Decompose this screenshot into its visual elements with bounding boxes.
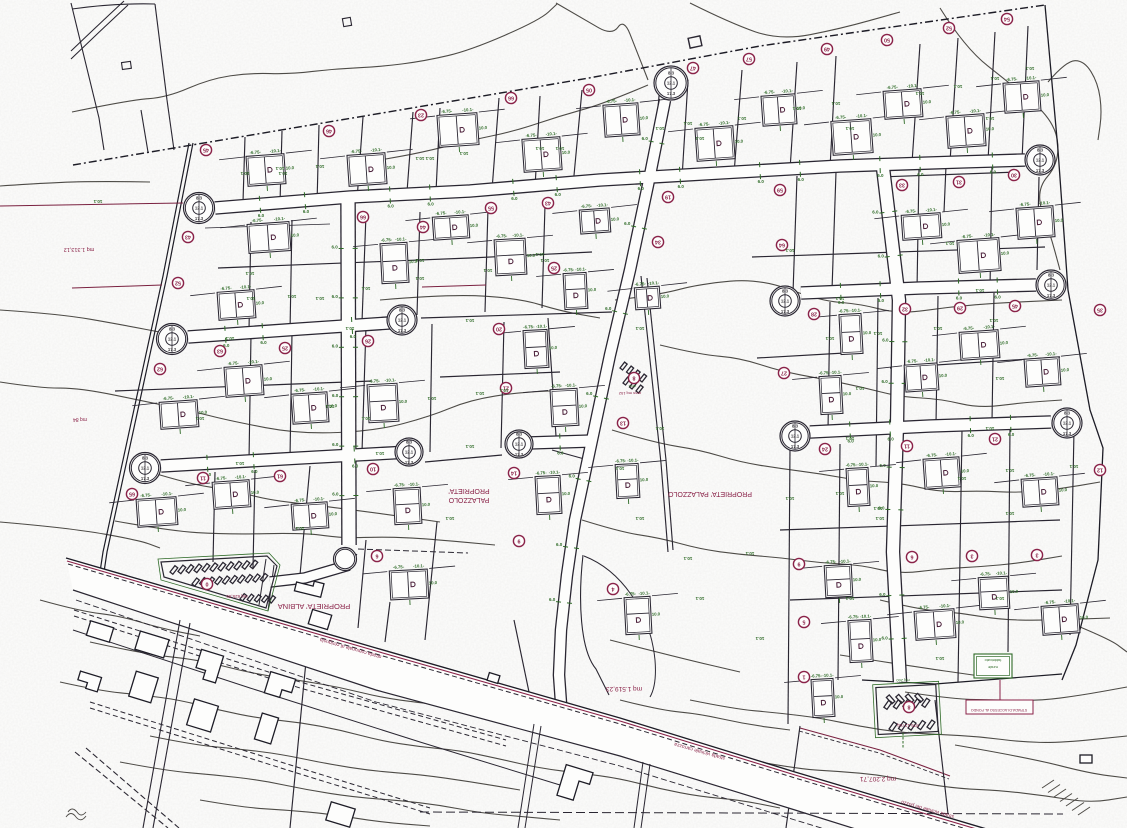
svg-text:-6.75-: -6.75- [926, 452, 938, 458]
svg-text:12.1: 12.1 [1047, 283, 1056, 288]
svg-text:PROPRIETA' PALAZZOLO: PROPRIETA' PALAZZOLO [667, 490, 751, 497]
svg-text:-6.75-: -6.75- [1027, 352, 1039, 358]
svg-text:6: 6 [376, 552, 379, 558]
svg-text:10.0: 10.0 [1055, 218, 1064, 224]
svg-text:6.0: 6.0 [427, 201, 434, 206]
svg-text:17.3: 17.3 [781, 309, 790, 314]
svg-text:6.0: 6.0 [332, 343, 339, 348]
svg-text:6.0: 6.0 [555, 192, 562, 197]
svg-text:10.1: 10.1 [915, 91, 924, 96]
svg-text:1: 1 [803, 673, 806, 679]
svg-text:10.1: 10.1 [427, 396, 436, 401]
svg-text:10.1: 10.1 [415, 258, 424, 263]
svg-text:10.1: 10.1 [745, 551, 754, 556]
svg-text:10.1: 10.1 [737, 116, 746, 121]
svg-text:63: 63 [217, 347, 223, 353]
svg-text:10.0: 10.0 [1010, 589, 1019, 594]
svg-text:8.3: 8.3 [782, 289, 789, 294]
svg-text:6.0: 6.0 [332, 442, 339, 447]
svg-text:10.0: 10.0 [562, 491, 571, 496]
svg-text:6.0: 6.0 [956, 295, 963, 300]
svg-text:43: 43 [185, 233, 191, 239]
svg-text:-6.75-: -6.75- [763, 89, 775, 95]
svg-text:-6.75-: -6.75- [825, 559, 837, 565]
svg-text:-10.1-: -10.1- [856, 113, 868, 119]
svg-text:10.1: 10.1 [635, 516, 644, 521]
svg-text:-10.1-: -10.1- [575, 266, 587, 272]
svg-text:10.1: 10.1 [975, 288, 984, 293]
svg-text:10.0: 10.0 [399, 399, 408, 404]
svg-text:45: 45 [203, 146, 209, 152]
svg-text:-6.75-: -6.75- [551, 383, 563, 389]
svg-text:10.1: 10.1 [845, 126, 854, 131]
svg-text:6.0: 6.0 [387, 203, 394, 208]
svg-text:45: 45 [1012, 302, 1018, 308]
svg-text:rurale: rurale [988, 665, 998, 669]
svg-text:10.0: 10.0 [387, 164, 396, 170]
svg-text:6.0: 6.0 [624, 221, 631, 226]
svg-text:6.0: 6.0 [303, 209, 310, 214]
svg-text:10.0: 10.0 [256, 300, 265, 306]
svg-text:29: 29 [957, 304, 963, 310]
svg-text:10.0: 10.0 [588, 287, 597, 292]
svg-text:-10.1-: -10.1- [1043, 471, 1055, 477]
svg-text:-6.75-: -6.75- [811, 673, 823, 679]
svg-text:10.1: 10.1 [425, 156, 434, 161]
svg-text:-6.75-: -6.75- [835, 114, 847, 120]
svg-text:-10.1-: -10.1- [830, 369, 842, 375]
svg-text:875,12 mq: 875,12 mq [897, 723, 919, 728]
svg-text:-6.75-: -6.75- [1044, 599, 1056, 605]
svg-text:17.3: 17.3 [405, 460, 414, 465]
svg-text:-6.75-: -6.75- [350, 148, 362, 154]
svg-text:-10.1-: -10.1- [270, 148, 282, 154]
svg-text:19: 19 [665, 193, 671, 199]
svg-text:54: 54 [1004, 15, 1010, 21]
svg-text:4: 4 [612, 585, 615, 591]
svg-text:10.0: 10.0 [470, 223, 479, 229]
svg-text:10.1: 10.1 [935, 656, 944, 661]
svg-text:-10.1-: -10.1- [1045, 351, 1057, 357]
svg-text:17.3: 17.3 [195, 216, 204, 221]
svg-text:6.0: 6.0 [968, 433, 975, 438]
svg-text:6.0: 6.0 [882, 337, 889, 342]
svg-text:21: 21 [992, 435, 998, 441]
svg-text:-6.75-: -6.75- [251, 217, 263, 223]
svg-text:3: 3 [971, 552, 974, 558]
svg-text:10.0: 10.0 [939, 373, 948, 379]
svg-text:10.1: 10.1 [540, 258, 549, 263]
svg-text:-10.1-: -10.1- [408, 481, 420, 487]
svg-text:10.0: 10.0 [1000, 340, 1009, 346]
svg-text:-10.1-: -10.1- [512, 232, 524, 238]
svg-text:6.0: 6.0 [882, 635, 889, 640]
svg-text:6.0: 6.0 [872, 210, 879, 215]
svg-text:6.0: 6.0 [549, 597, 556, 602]
svg-text:28: 28 [811, 310, 817, 316]
svg-text:10.0: 10.0 [329, 511, 338, 517]
svg-text:-10.1-: -10.1- [1039, 200, 1051, 206]
svg-text:10.0: 10.0 [1041, 92, 1050, 98]
svg-text:10.1: 10.1 [1025, 66, 1034, 71]
svg-text:26: 26 [365, 337, 371, 343]
svg-text:10.1: 10.1 [755, 636, 764, 641]
svg-text:10.1: 10.1 [275, 166, 284, 171]
svg-text:6.0: 6.0 [350, 334, 357, 339]
svg-text:-10.1-: -10.1- [638, 590, 650, 596]
svg-text:64: 64 [779, 241, 785, 247]
svg-text:-6.75-: -6.75- [394, 482, 406, 488]
svg-text:6.0: 6.0 [990, 169, 997, 174]
svg-text:12.1: 12.1 [515, 442, 524, 447]
svg-text:10.1: 10.1 [499, 388, 508, 393]
svg-text:10.0: 10.0 [1001, 250, 1010, 256]
svg-text:-6.75-: -6.75- [634, 281, 646, 287]
svg-text:mq 1.519,23: mq 1.519,23 [606, 685, 643, 692]
svg-text:10.0: 10.0 [264, 376, 273, 382]
svg-text:8.3: 8.3 [399, 308, 406, 313]
svg-text:-10.1-: -10.1- [983, 324, 995, 330]
svg-text:6: 6 [911, 553, 914, 559]
svg-text:-10.1-: -10.1- [924, 357, 936, 363]
svg-text:6.0: 6.0 [638, 186, 645, 191]
svg-text:10.1: 10.1 [873, 506, 882, 511]
svg-text:10.0: 10.0 [1061, 367, 1070, 373]
svg-text:12.1: 12.1 [141, 466, 150, 471]
svg-text:0: 0 [206, 580, 209, 586]
svg-text:47: 47 [690, 64, 696, 70]
svg-text:17.3: 17.3 [1047, 293, 1056, 298]
svg-text:10.0: 10.0 [611, 216, 620, 222]
svg-text:6.0: 6.0 [586, 391, 593, 396]
svg-text:10.1: 10.1 [615, 466, 624, 471]
svg-text:50: 50 [884, 36, 890, 42]
svg-text:-10.1-: -10.1- [781, 88, 793, 94]
svg-text:-10.1-: -10.1- [996, 570, 1008, 576]
svg-text:17.3: 17.3 [141, 476, 150, 481]
svg-text:-6.75-: -6.75- [441, 108, 453, 114]
svg-text:-10.1-: -10.1- [718, 120, 730, 126]
svg-text:-10.1-: -10.1- [1025, 75, 1037, 81]
svg-text:10.1: 10.1 [287, 294, 296, 299]
svg-text:fabbricato: fabbricato [985, 658, 1002, 662]
svg-text:mq 2.207,71: mq 2.207,71 [860, 775, 897, 782]
svg-text:-10.1-: -10.1- [549, 469, 561, 475]
svg-text:27: 27 [781, 369, 787, 375]
svg-text:10.0: 10.0 [640, 115, 649, 121]
svg-text:10.0: 10.0 [479, 125, 488, 131]
svg-text:-6.75-: -6.75- [381, 237, 393, 243]
svg-text:-6.75-: -6.75- [949, 109, 961, 115]
svg-text:10.1: 10.1 [361, 286, 370, 291]
svg-text:-6.75-: -6.75- [163, 395, 175, 401]
svg-text:46: 46 [326, 127, 332, 133]
svg-text:20: 20 [496, 325, 502, 331]
svg-text:-6.75-: -6.75- [393, 564, 405, 570]
svg-text:12.1: 12.1 [168, 337, 177, 342]
svg-text:6.0: 6.0 [642, 136, 649, 141]
svg-text:8.3: 8.3 [1048, 273, 1055, 278]
svg-text:5: 5 [803, 618, 806, 624]
svg-text:52: 52 [175, 279, 181, 285]
svg-text:17.3: 17.3 [791, 444, 800, 449]
svg-text:10.1: 10.1 [985, 426, 994, 431]
svg-text:10.0: 10.0 [835, 694, 844, 699]
svg-text:-10.1-: -10.1- [648, 280, 660, 286]
svg-text:10.0: 10.0 [986, 126, 995, 132]
svg-text:-10.1-: -10.1- [313, 386, 325, 392]
svg-text:-6.75-: -6.75- [227, 360, 239, 366]
svg-text:10.0: 10.0 [843, 391, 852, 396]
svg-text:12.1: 12.1 [667, 81, 676, 86]
svg-text:10.1: 10.1 [325, 404, 334, 409]
svg-text:-6.75-: -6.75- [1006, 76, 1018, 82]
svg-text:-6.75-: -6.75- [249, 149, 261, 155]
svg-text:10.1: 10.1 [831, 101, 840, 106]
svg-text:-6.75-: -6.75- [294, 387, 306, 393]
svg-text:6.0: 6.0 [878, 254, 885, 259]
svg-text:6.0: 6.0 [678, 184, 685, 189]
svg-text:-6.75-: -6.75- [1024, 472, 1036, 478]
svg-text:17.3: 17.3 [398, 328, 407, 333]
svg-text:-10.1-: -10.1- [839, 558, 851, 564]
svg-text:mq 1.313,12: mq 1.313,12 [64, 246, 95, 252]
svg-text:-10.1-: -10.1- [235, 474, 247, 480]
svg-text:-6.75-: -6.75- [220, 285, 232, 291]
svg-text:8.3: 8.3 [196, 196, 203, 201]
svg-text:6.0: 6.0 [798, 177, 805, 182]
svg-text:12.1: 12.1 [781, 299, 790, 304]
svg-text:-10.1-: -10.1- [313, 496, 325, 502]
svg-text:10.1: 10.1 [845, 596, 854, 601]
svg-text:-6.75-: -6.75- [819, 370, 831, 376]
svg-text:10.0: 10.0 [923, 99, 932, 105]
svg-text:9: 9 [518, 537, 521, 543]
svg-text:10.1: 10.1 [990, 76, 999, 81]
svg-text:05: 05 [586, 86, 592, 92]
svg-text:-10.1-: -10.1- [161, 491, 173, 497]
svg-text:mq 625,86: mq 625,86 [226, 594, 248, 599]
svg-text:10.1: 10.1 [1005, 511, 1014, 516]
svg-text:62: 62 [157, 365, 163, 371]
svg-text:10.1: 10.1 [235, 461, 244, 466]
svg-text:STRADA DI ACCESSO AL FONDO: STRADA DI ACCESSO AL FONDO [971, 708, 1028, 712]
svg-text:10.1: 10.1 [246, 296, 255, 301]
svg-text:10.1: 10.1 [345, 326, 354, 331]
svg-text:10.1: 10.1 [535, 146, 544, 151]
svg-text:10.1: 10.1 [695, 136, 704, 141]
svg-text:10.0: 10.0 [251, 490, 260, 496]
svg-text:10.0: 10.0 [873, 637, 882, 642]
svg-text:-6.75-: -6.75- [980, 571, 992, 577]
svg-text:12.1: 12.1 [1063, 421, 1072, 426]
svg-text:10.1: 10.1 [683, 121, 692, 126]
svg-text:66: 66 [360, 213, 366, 219]
svg-text:10.1: 10.1 [835, 491, 844, 496]
svg-text:6.0: 6.0 [332, 393, 339, 398]
svg-text:-6.75-: -6.75- [848, 614, 860, 620]
svg-text:-10.1-: -10.1- [462, 107, 474, 113]
svg-text:10.1: 10.1 [555, 146, 564, 151]
svg-text:14: 14 [511, 469, 517, 475]
svg-text:12.1: 12.1 [791, 434, 800, 439]
svg-text:10.0: 10.0 [942, 221, 951, 227]
svg-text:PROPRIETA' ALBINA: PROPRIETA' ALBINA [278, 602, 351, 611]
svg-text:6.0: 6.0 [917, 172, 924, 177]
svg-text:17.3: 17.3 [1063, 431, 1072, 436]
svg-text:10.1: 10.1 [1005, 468, 1014, 473]
svg-text:-6.75-: -6.75- [435, 210, 447, 216]
svg-text:-10.1-: -10.1- [384, 377, 396, 383]
svg-text:6.0: 6.0 [251, 469, 258, 474]
svg-text:10.1: 10.1 [792, 106, 801, 111]
svg-text:-6.75-: -6.75- [698, 121, 710, 127]
svg-text:10.1: 10.1 [957, 476, 966, 481]
svg-text:10.1: 10.1 [835, 296, 844, 301]
svg-text:10.1: 10.1 [785, 496, 794, 501]
svg-text:6.0: 6.0 [758, 179, 765, 184]
svg-text:10.0: 10.0 [286, 165, 295, 171]
svg-text:6.0: 6.0 [878, 298, 885, 303]
svg-text:43: 43 [545, 199, 551, 205]
svg-text:-6.75-: -6.75- [140, 492, 152, 498]
svg-text:10.1: 10.1 [953, 84, 962, 89]
svg-text:6.0: 6.0 [877, 173, 884, 178]
svg-text:-6.75-: -6.75- [369, 378, 381, 384]
svg-text:10.1: 10.1 [225, 336, 234, 341]
svg-text:65: 65 [129, 490, 135, 496]
svg-text:10.1: 10.1 [315, 164, 324, 169]
svg-text:-10.1-: -10.1- [240, 284, 252, 290]
svg-text:10.1: 10.1 [635, 326, 644, 331]
svg-text:8.3: 8.3 [169, 327, 176, 332]
svg-text:10.1: 10.1 [535, 252, 544, 257]
svg-text:10.1: 10.1 [240, 171, 249, 176]
svg-text:8: 8 [908, 703, 911, 709]
svg-text:10.1: 10.1 [695, 596, 704, 601]
svg-text:6.0: 6.0 [1008, 432, 1015, 437]
svg-text:-10.1-: -10.1- [939, 603, 951, 609]
svg-text:-10.1-: -10.1- [565, 382, 577, 388]
svg-text:32: 32 [902, 305, 908, 311]
svg-text:PROPRIETA': PROPRIETA' [448, 487, 489, 494]
svg-text:-6.75-: -6.75- [905, 208, 917, 214]
svg-text:33: 33 [899, 181, 905, 187]
svg-text:mq 84: mq 84 [73, 416, 87, 422]
svg-text:-6.75-: -6.75- [523, 324, 535, 330]
svg-text:10.1: 10.1 [785, 248, 794, 253]
svg-text:10.0: 10.0 [661, 293, 670, 299]
svg-text:area mq 152: area mq 152 [618, 391, 641, 396]
svg-text:-10.1-: -10.1- [413, 563, 425, 569]
svg-text:17.3: 17.3 [667, 91, 676, 96]
svg-text:10.1: 10.1 [361, 416, 370, 421]
svg-text:-6.75-: -6.75- [887, 84, 899, 90]
svg-text:-10.1-: -10.1- [850, 307, 862, 313]
svg-text:-10.1-: -10.1- [857, 461, 869, 467]
svg-text:10.1: 10.1 [465, 444, 474, 449]
svg-text:-10.1-: -10.1- [454, 209, 466, 215]
svg-text:12.1: 12.1 [405, 450, 414, 455]
svg-text:49: 49 [824, 45, 830, 51]
svg-text:10.0: 10.0 [956, 619, 965, 625]
svg-text:6.0: 6.0 [879, 592, 886, 597]
svg-text:10.0: 10.0 [873, 132, 882, 138]
svg-text:6.0: 6.0 [511, 196, 518, 201]
svg-text:-10.1-: -10.1- [925, 207, 937, 213]
svg-text:-6.75-: -6.75- [525, 132, 537, 138]
svg-text:10.1: 10.1 [245, 271, 254, 276]
svg-text:8.3: 8.3 [406, 440, 413, 445]
svg-text:12: 12 [1097, 466, 1103, 472]
svg-text:10.1: 10.1 [989, 318, 998, 323]
svg-text:-10.1-: -10.1- [274, 216, 286, 222]
svg-text:-6.75-: -6.75- [961, 233, 973, 239]
svg-text:66: 66 [508, 94, 514, 100]
svg-text:10.0: 10.0 [863, 330, 872, 335]
svg-text:-10.1-: -10.1- [183, 394, 195, 400]
svg-text:-6.75-: -6.75- [839, 308, 851, 314]
svg-text:- - - -: - - - - [907, 730, 915, 734]
svg-text:-6.75-: -6.75- [615, 458, 627, 464]
svg-text:-6.75-: -6.75- [918, 604, 930, 610]
svg-text:-10.1-: -10.1- [860, 613, 872, 619]
svg-text:17.3: 17.3 [168, 347, 177, 352]
svg-text:-6.75-: -6.75- [1019, 201, 1031, 207]
svg-text:10.0: 10.0 [579, 403, 588, 408]
svg-text:-10.1-: -10.1- [945, 451, 957, 457]
svg-text:10.1: 10.1 [825, 336, 834, 341]
svg-text:6.0: 6.0 [352, 463, 359, 468]
svg-text:10.1: 10.1 [475, 391, 484, 396]
svg-text:10.1: 10.1 [295, 526, 304, 531]
svg-text:8.3: 8.3 [1037, 148, 1044, 153]
svg-text:10.0: 10.0 [527, 253, 536, 258]
svg-text:10.1: 10.1 [93, 199, 102, 204]
svg-text:10.1: 10.1 [875, 516, 884, 521]
svg-text:-10.1-: -10.1- [907, 83, 919, 89]
svg-text:-6.75-: -6.75- [963, 325, 975, 331]
svg-text:-6.75-: -6.75- [535, 470, 547, 476]
svg-text:10.0: 10.0 [853, 577, 862, 582]
svg-text:-6.75-: -6.75- [563, 267, 575, 273]
svg-text:3: 3 [1036, 551, 1039, 557]
svg-text:10.1: 10.1 [459, 151, 468, 156]
svg-text:10.0: 10.0 [640, 477, 649, 482]
svg-text:8.3: 8.3 [1064, 411, 1071, 416]
svg-text:-6.75-: -6.75- [215, 475, 227, 481]
svg-text:-10.1-: -10.1- [395, 236, 407, 242]
svg-text:25: 25 [551, 264, 557, 270]
svg-text:10.1: 10.1 [933, 326, 942, 331]
svg-text:-10.1-: -10.1- [984, 232, 996, 238]
svg-text:-10.1-: -10.1- [545, 131, 557, 137]
svg-text:6.0: 6.0 [882, 379, 889, 384]
svg-text:11: 11 [200, 474, 206, 480]
svg-text:-10.1-: -10.1- [597, 202, 609, 208]
svg-text:8.3: 8.3 [142, 456, 149, 461]
svg-text:mq 260: mq 260 [896, 678, 910, 683]
svg-text:52: 52 [946, 24, 952, 30]
svg-text:10.1: 10.1 [465, 318, 474, 323]
svg-text:17.3: 17.3 [515, 452, 524, 457]
svg-text:10.1: 10.1 [985, 116, 994, 121]
svg-text:13: 13 [620, 419, 626, 425]
svg-text:-6.75-: -6.75- [625, 591, 637, 597]
svg-text:55: 55 [488, 204, 494, 210]
svg-text:10.1: 10.1 [945, 241, 954, 246]
svg-text:10.1: 10.1 [195, 416, 204, 421]
